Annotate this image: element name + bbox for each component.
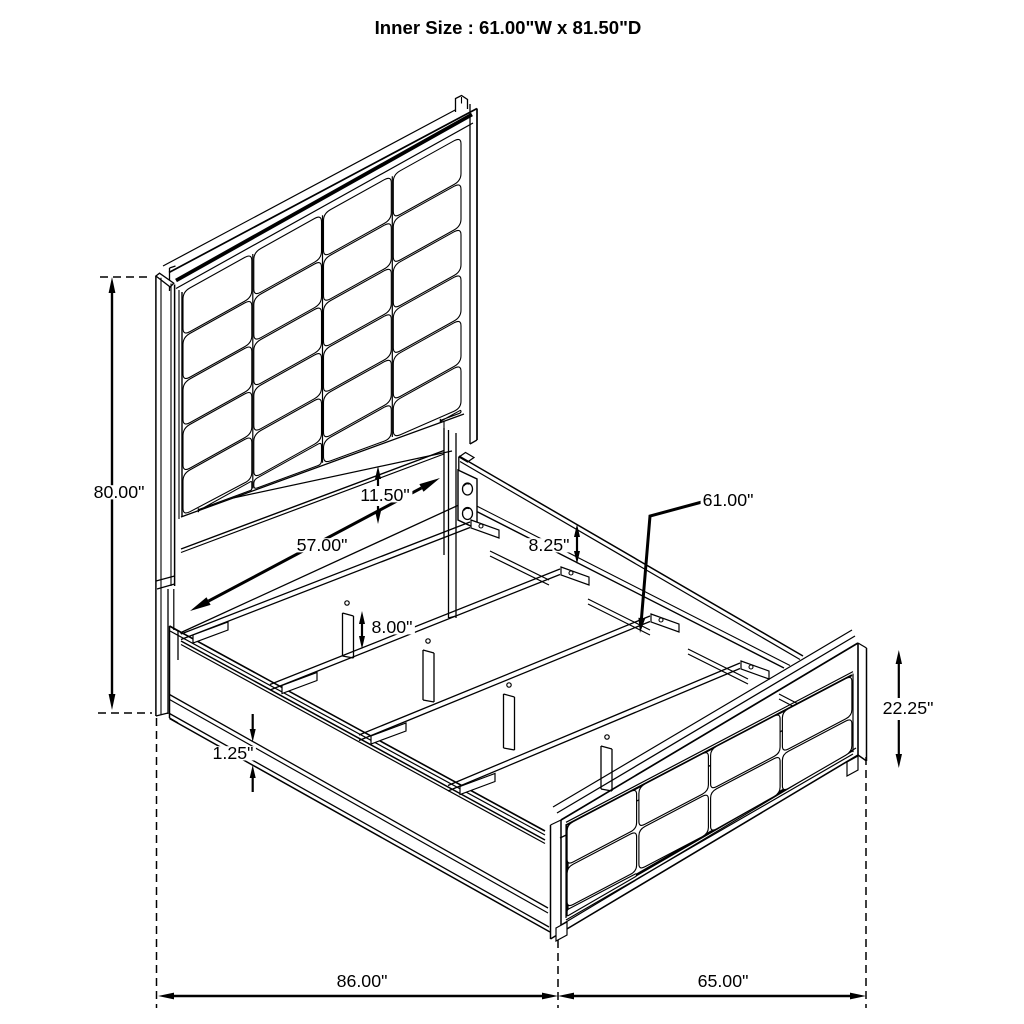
svg-text:86.00": 86.00" (337, 971, 388, 991)
svg-text:Inner Size : 61.00"W x 81.50"D: Inner Size : 61.00"W x 81.50"D (375, 17, 642, 38)
svg-text:22.25": 22.25" (883, 698, 934, 718)
svg-text:65.00": 65.00" (698, 971, 749, 991)
svg-text:8.00": 8.00" (372, 617, 413, 637)
svg-text:57.00": 57.00" (297, 535, 348, 555)
svg-text:8.25": 8.25" (529, 535, 570, 555)
svg-text:61.00": 61.00" (703, 490, 754, 510)
svg-text:1.25": 1.25" (213, 743, 254, 763)
svg-text:11.50": 11.50" (360, 485, 410, 505)
svg-text:80.00": 80.00" (94, 482, 145, 502)
